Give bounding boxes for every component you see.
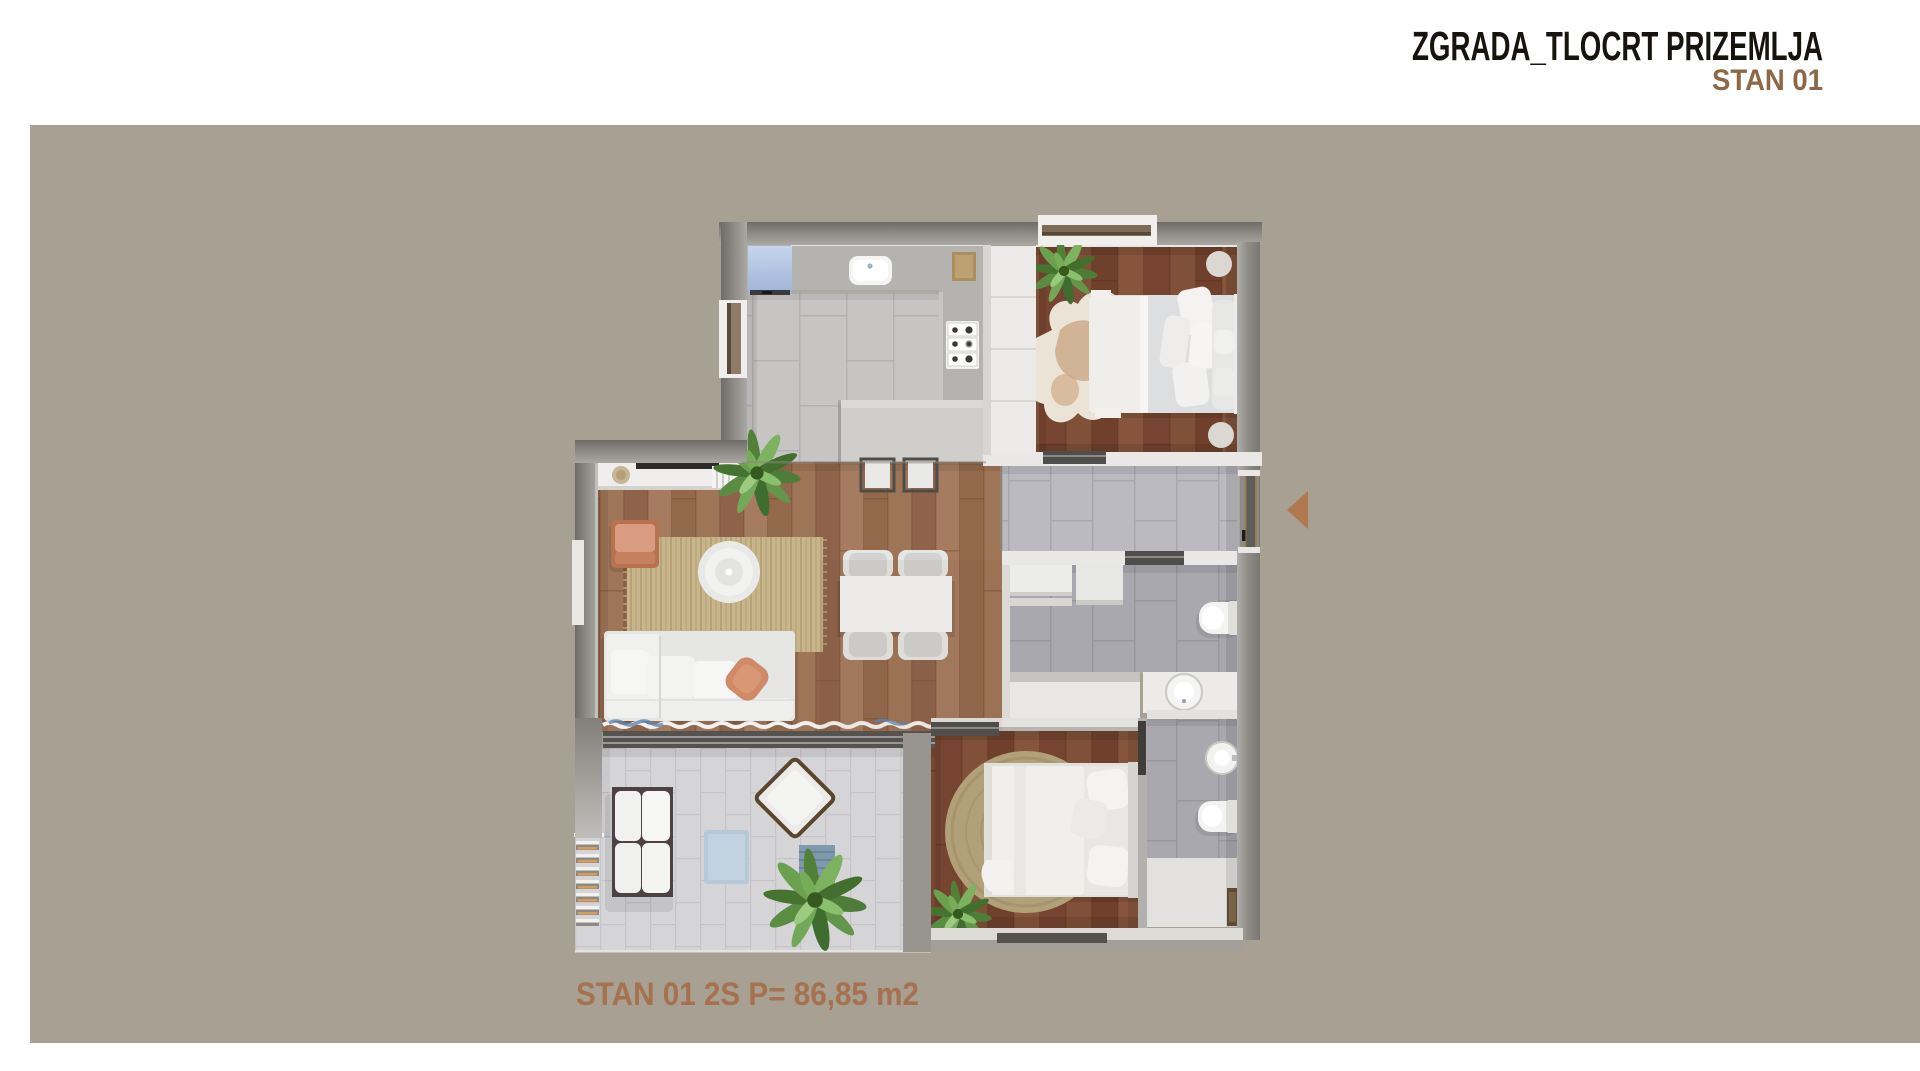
- svg-text:STAN 01: STAN 01: [1712, 64, 1823, 97]
- svg-text:STAN 01 2S P= 86,85 m2: STAN 01 2S P= 86,85 m2: [576, 976, 919, 1012]
- svg-text:ZGRADA_TLOCRT PRIZEMLJA: ZGRADA_TLOCRT PRIZEMLJA: [1412, 23, 1823, 69]
